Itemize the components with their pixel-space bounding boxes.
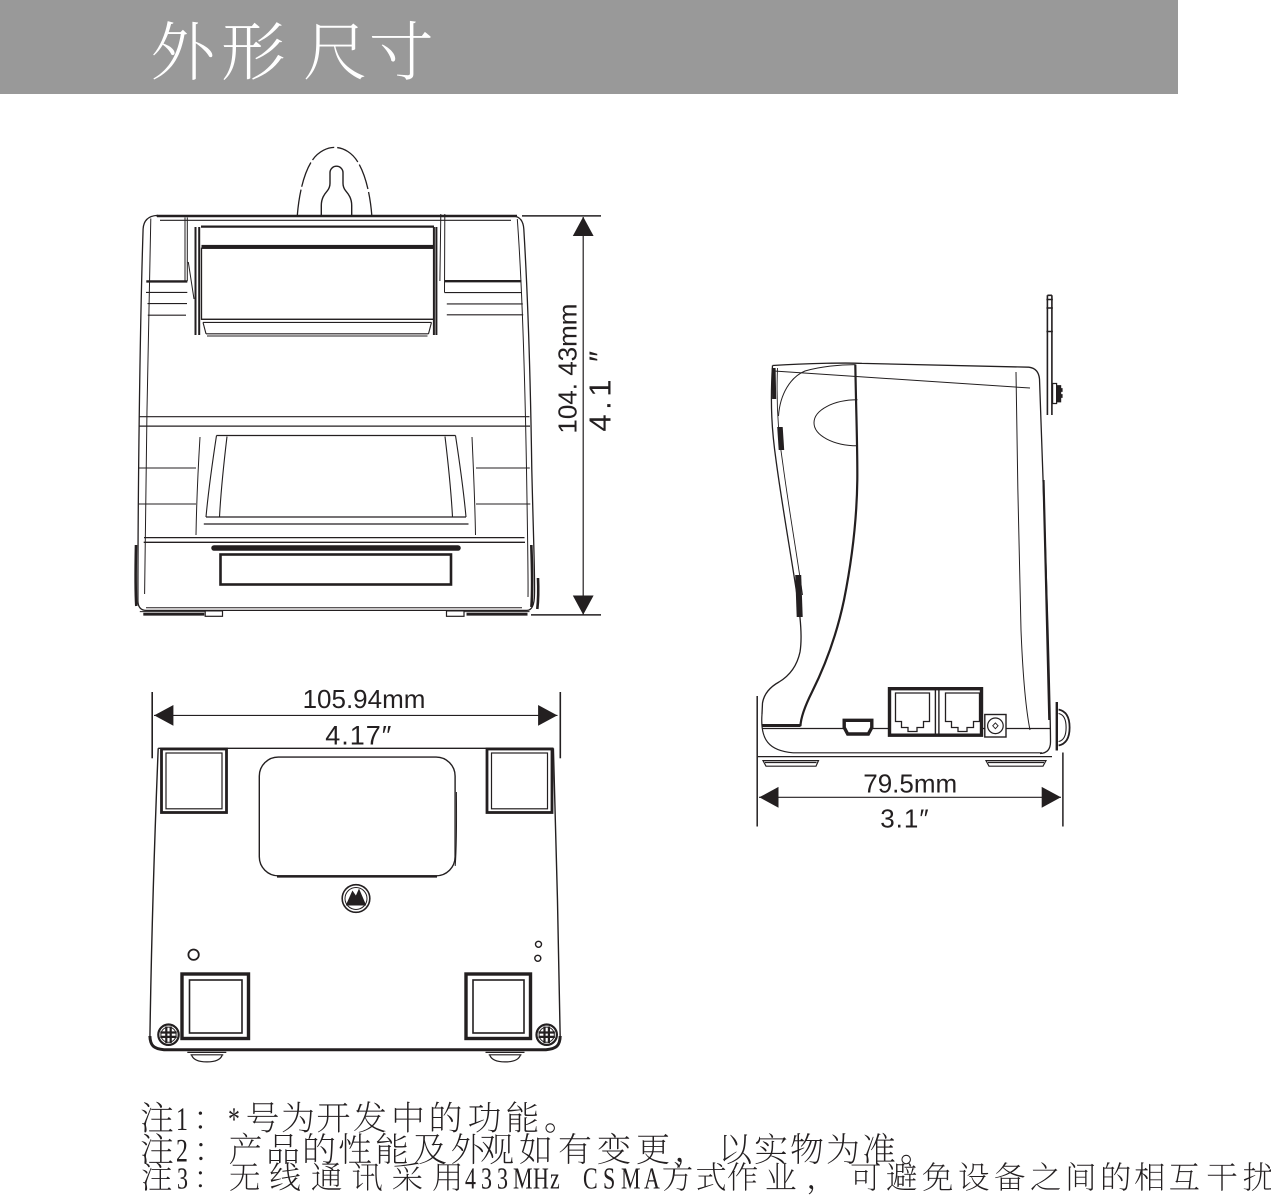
svg-text:104. 43mm: 104. 43mm <box>552 304 582 434</box>
svg-text:3.1″: 3.1″ <box>880 804 929 834</box>
svg-text:4.17″: 4.17″ <box>325 721 392 751</box>
svg-text:4.1 ″: 4.1 ″ <box>583 346 618 431</box>
svg-text:105.94mm: 105.94mm <box>303 684 426 714</box>
svg-text:79.5mm: 79.5mm <box>863 769 957 799</box>
